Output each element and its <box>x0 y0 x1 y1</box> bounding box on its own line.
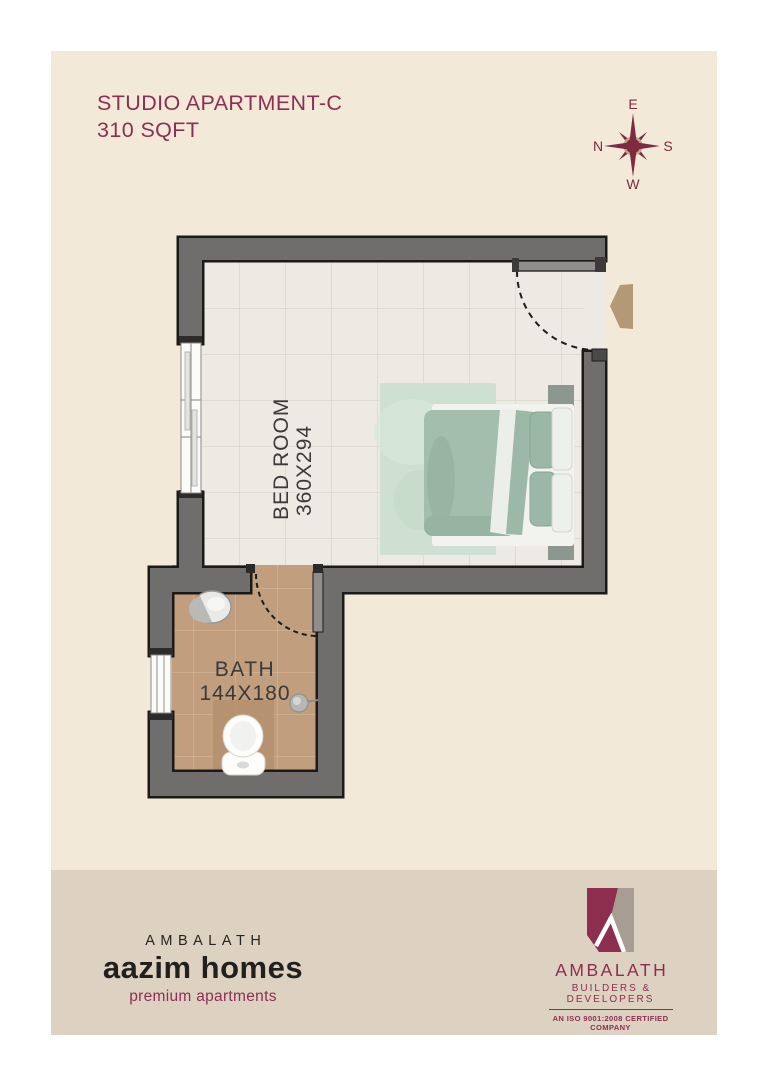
bath-label-name: BATH <box>215 658 275 681</box>
bed <box>424 385 574 560</box>
compass-top-label: E <box>628 96 637 112</box>
entry-arrow-icon <box>610 284 633 329</box>
bath-label-dimensions: 144X180 <box>199 682 290 705</box>
compass-icon: E S W N <box>593 96 673 192</box>
company-logo: AMBALATH BUILDERS & DEVELOPERS AN ISO 90… <box>538 888 683 1032</box>
company-name: AMBALATH <box>538 960 683 981</box>
compass-left-label: N <box>593 138 603 154</box>
floor-plan-poster: STUDIO APARTMENT-C 310 SQFT <box>0 0 768 1086</box>
compass-right-label: S <box>663 138 672 154</box>
bath-window <box>149 648 173 720</box>
company-certification: AN ISO 9001:2008 CERTIFIED COMPANY <box>538 1014 683 1032</box>
toilet <box>222 715 265 775</box>
brand-tagline: premium apartments <box>85 988 321 1006</box>
brand-product: aazim homes <box>85 950 321 986</box>
compass-bottom-label: W <box>626 176 640 192</box>
brand-logo: AMBALATH aazim homes premium apartments <box>85 933 321 1006</box>
company-logo-icon <box>587 888 634 952</box>
company-division: BUILDERS & DEVELOPERS <box>538 983 683 1005</box>
brand-name: AMBALATH <box>85 933 321 949</box>
bedroom-window <box>179 336 202 498</box>
divider <box>549 1009 673 1010</box>
entry-threshold <box>584 260 605 352</box>
